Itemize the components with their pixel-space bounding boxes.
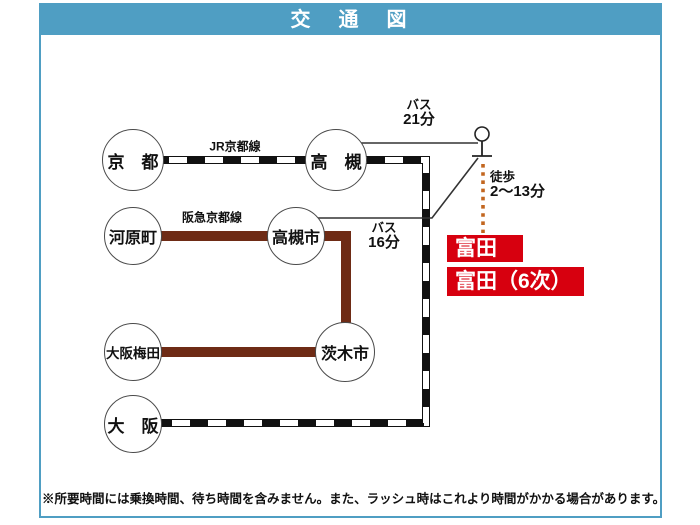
station-takatsuki-label: 高 槻 xyxy=(311,148,362,173)
station-osaka: 大 阪 xyxy=(104,395,162,453)
bus-21min-time: 21分 xyxy=(403,112,435,129)
bus-16min-label: バス 16分 xyxy=(368,221,400,252)
station-ibarakishi: 茨木市 xyxy=(315,322,375,382)
station-kyoto-label: 京 都 xyxy=(108,148,159,173)
bus-16min-time: 16分 xyxy=(368,235,400,252)
hankyu-kyoto-line-label: 阪急京都線 xyxy=(182,209,242,226)
walk-label: 徒歩 2〜13分 xyxy=(490,170,545,201)
station-takatsukishi: 高槻市 xyxy=(267,207,325,265)
station-osakaumeda-label: 大阪梅田 xyxy=(106,342,160,362)
station-ibarakishi-label: 茨木市 xyxy=(321,340,369,364)
bus-stop-icon xyxy=(475,127,489,141)
bus-21min-mode: バス xyxy=(403,98,435,112)
station-takatsukishi-label: 高槻市 xyxy=(272,224,320,248)
walk-mode: 徒歩 xyxy=(490,170,545,184)
station-kawaramachi: 河原町 xyxy=(104,207,162,265)
station-kawaramachi-label: 河原町 xyxy=(109,224,157,248)
footnote: ※所要時間には乗換時間、待ち時間を含みません。また、ラッシュ時はこれより時間がか… xyxy=(42,488,660,507)
station-kyoto: 京 都 xyxy=(102,129,164,191)
destination-badge-tonda: 富田 xyxy=(447,235,523,262)
station-osaka-label: 大 阪 xyxy=(108,412,159,437)
jr-kyoto-line-label: JR京都線 xyxy=(209,138,260,155)
diagram-canvas: 京 都 高 槻 河原町 高槻市 大阪梅田 茨木市 大 阪 JR京都線 阪急京都線… xyxy=(0,0,700,525)
station-takatsuki: 高 槻 xyxy=(305,129,367,191)
bus-16min-mode: バス xyxy=(368,221,400,235)
walk-time: 2〜13分 xyxy=(490,184,545,201)
destination-badge-tonda-6: 富田（6次） xyxy=(447,267,584,296)
station-osakaumeda: 大阪梅田 xyxy=(104,323,162,381)
bus-21min-label: バス 21分 xyxy=(403,98,435,129)
route-lines-art xyxy=(0,0,700,525)
jr-line-base xyxy=(133,160,426,423)
jr-line-stripes xyxy=(133,160,426,423)
traffic-diagram-page: 交 通 図 京 都 高 槻 河原町 xyxy=(0,0,700,525)
